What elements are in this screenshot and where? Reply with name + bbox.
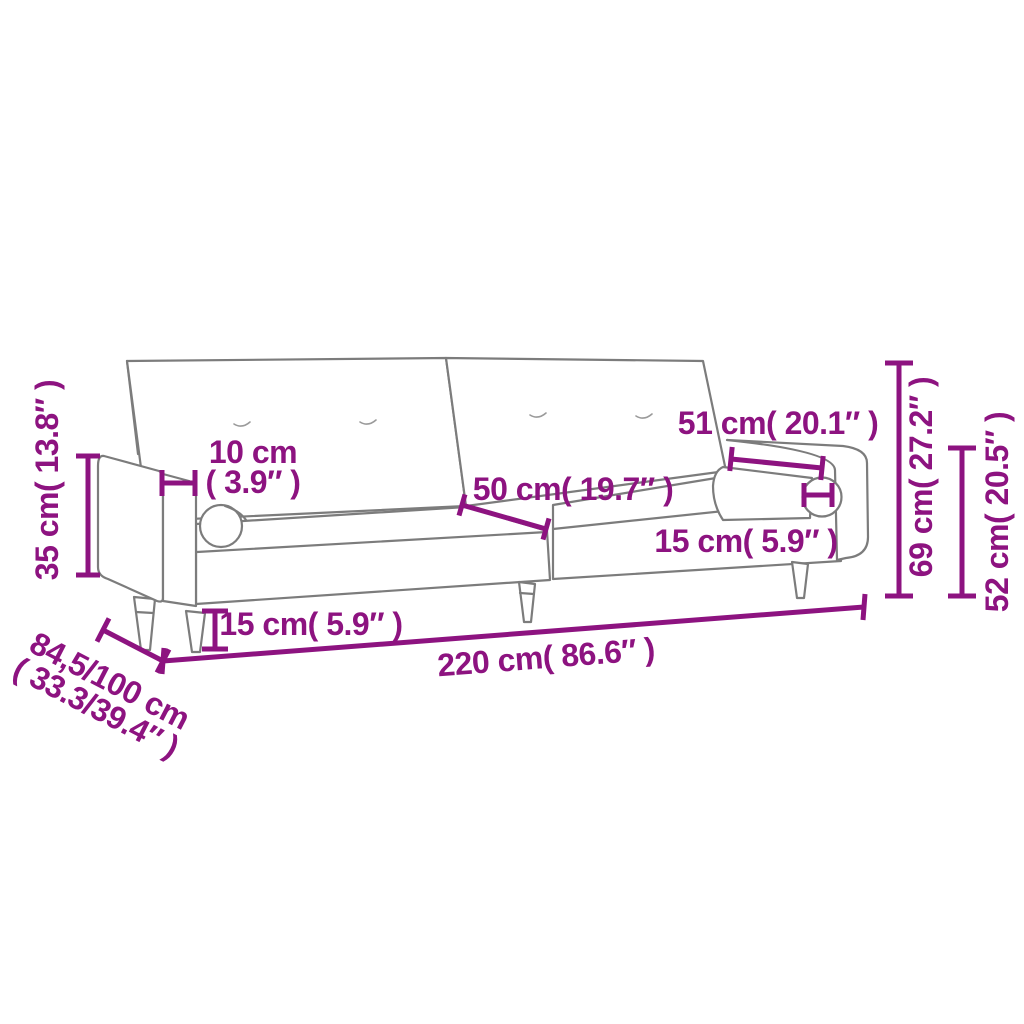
dim-backrest-height <box>948 448 976 596</box>
label-bolster-diameter: 15 cm( 5.9″ ) <box>654 526 837 556</box>
label-leg-height: 15 cm( 5.9″ ) <box>219 609 402 639</box>
leg-middle <box>519 582 535 622</box>
sofa-line-drawing <box>0 0 1024 1024</box>
label-backrest-height: 52 cm( 20.5″ ) <box>982 412 1012 612</box>
armrest-left-side <box>163 474 196 606</box>
label-seat-depth: 50 cm( 19.7″ ) <box>473 474 673 504</box>
label-armrest-length: 51 cm( 20.1″ ) <box>678 408 878 438</box>
label-armrest-width: 10 cm ( 3.9″ ) <box>206 437 301 497</box>
armrest-left-front <box>98 456 163 602</box>
product-dimension-diagram: 35 cm( 13.8″ ) 10 cm ( 3.9″ ) 50 cm( 19.… <box>0 0 1024 1024</box>
leg-front-left <box>186 611 205 652</box>
dim-armrest-height <box>76 456 100 575</box>
bolster-right-body <box>713 467 812 520</box>
seat-cushion-left <box>196 507 550 604</box>
label-armrest-width-line1: 10 cm <box>206 437 301 467</box>
leg-right <box>792 562 808 598</box>
label-armrest-width-line2: ( 3.9″ ) <box>206 467 301 497</box>
label-overall-height: 69 cm( 27.2″ ) <box>906 377 936 577</box>
leg-back-left <box>134 597 155 650</box>
label-armrest-height: 35 cm( 13.8″ ) <box>32 380 62 580</box>
